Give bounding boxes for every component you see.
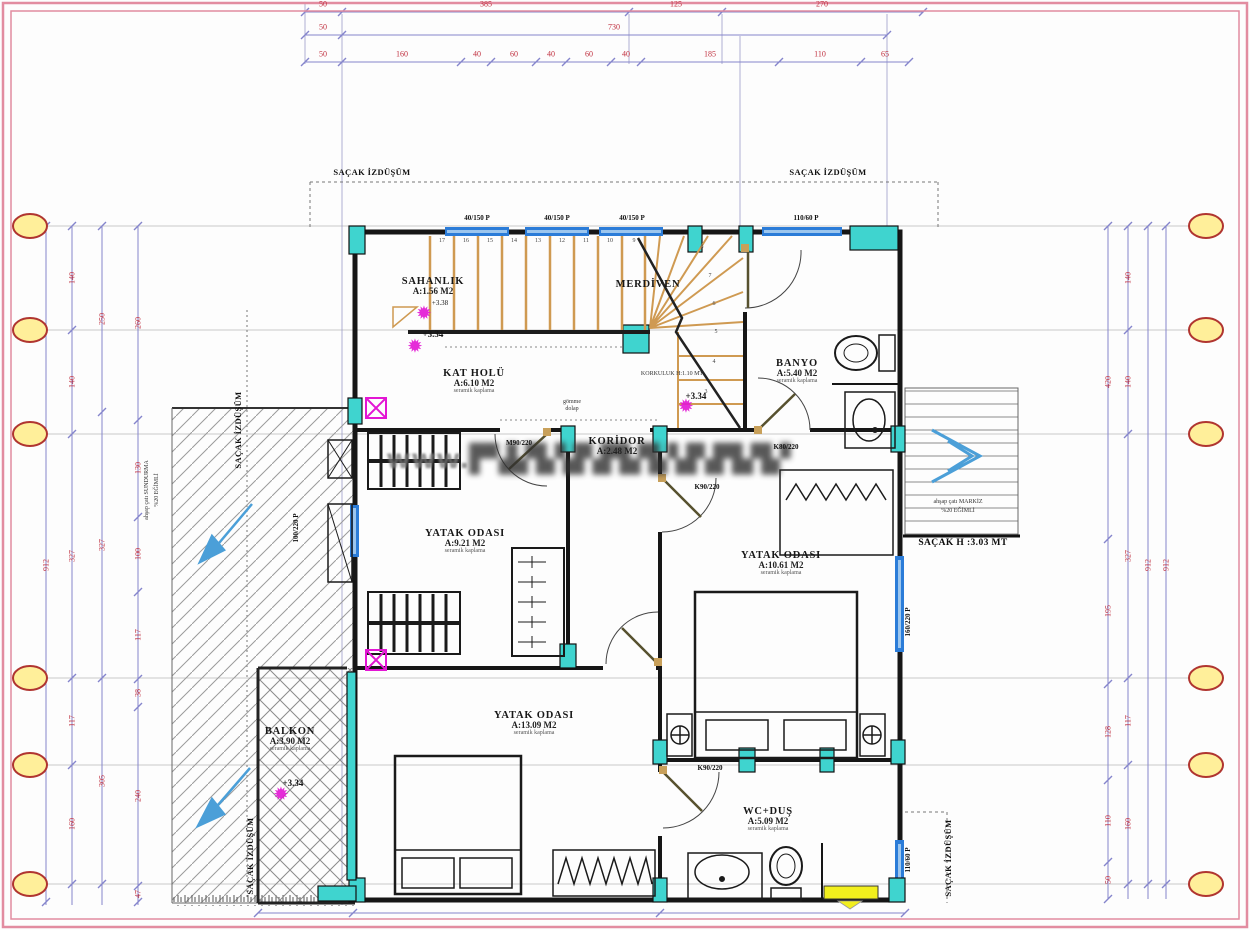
- toilet-icon: [835, 335, 895, 371]
- hatch-balcony: [258, 668, 355, 903]
- landing-door-wedge: [393, 307, 417, 327]
- shower-strip: [824, 886, 878, 899]
- drain-arrow-icon: [838, 901, 862, 909]
- closet-left: [512, 548, 564, 656]
- closet-right: [780, 470, 893, 555]
- watermark-obscured: ▛▚▙▜▞▟▚▛▙▜▞▟▚▛▙▜▞: [469, 444, 788, 475]
- watermark: www.▛▚▙▜▞▟▚▛▙▜▞▟▚▛▙▜▞: [386, 444, 788, 475]
- radiator-bottom: [553, 850, 655, 896]
- fixtures: [688, 335, 895, 909]
- toilet-icon: [770, 847, 802, 901]
- floorplan-page: www.▛▚▙▜▞▟▚▛▙▜▞▟▚▛▙▜▞ 503851252705073050…: [0, 0, 1250, 930]
- bed-bottom: [395, 756, 521, 894]
- bed-right: [667, 592, 885, 758]
- washbasin-icon: [845, 392, 895, 448]
- watermark-prefix: www.: [386, 444, 469, 475]
- markiz-canopy: [903, 388, 1020, 536]
- wardrobe-grid-2: [368, 592, 460, 654]
- door-leaves: [509, 250, 795, 811]
- stairs: [393, 236, 743, 428]
- furniture: [328, 433, 893, 896]
- columns: [318, 226, 905, 902]
- washbasin-icon: [688, 853, 762, 899]
